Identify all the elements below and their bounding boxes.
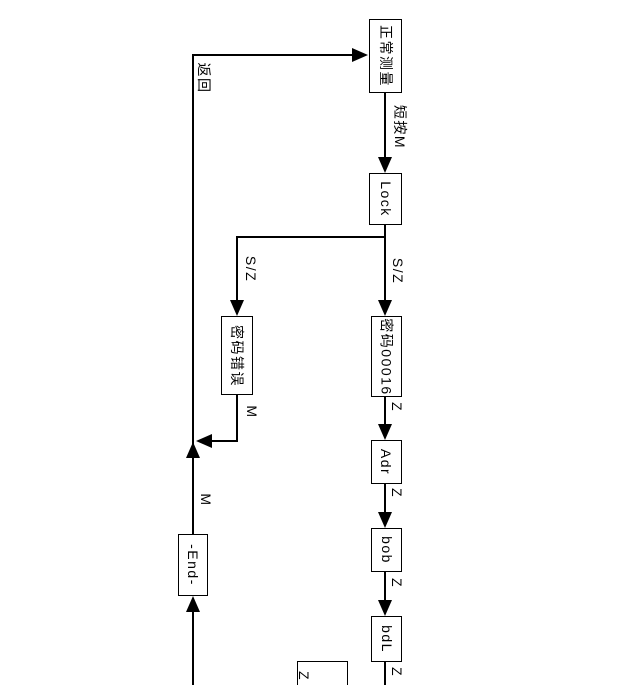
- label-sz-left: S/Z: [243, 256, 259, 282]
- arrowhead-into-bob: [378, 512, 392, 528]
- arrowhead-into-normal-measure: [352, 48, 368, 62]
- node-lock: Lock: [369, 173, 402, 225]
- label-m-after-error: M: [244, 405, 260, 418]
- node-password-error: 密码错误: [221, 316, 253, 395]
- connector-bdl-down: [384, 661, 386, 685]
- arrowhead-into-password-value: [378, 300, 392, 316]
- label-short-press-m: 短按M: [390, 105, 410, 149]
- node-normal-measure-label: 正常测量: [376, 25, 396, 87]
- node-partial-bottom-label: Z: [296, 671, 312, 681]
- connector-error-to-return: [210, 440, 238, 442]
- arrowhead-return-up: [186, 442, 200, 458]
- connector-password-to-adr: [384, 396, 386, 426]
- node-normal-measure: 正常测量: [369, 19, 402, 93]
- flowchart-canvas: 正常测量 Lock 密码错误 密码00016 Adr bob bdL -End-…: [0, 0, 640, 685]
- label-z-after-bdl: Z: [389, 667, 405, 677]
- node-bdl-label: bdL: [378, 625, 394, 653]
- label-m-to-end: M: [198, 493, 214, 506]
- node-password-value: 密码00016: [371, 316, 402, 397]
- node-bob-label: bob: [378, 536, 394, 564]
- connector-branch-to-error: [236, 237, 238, 302]
- connector-end-from-bottom: [192, 610, 194, 685]
- connector-measure-to-lock: [384, 92, 386, 159]
- arrowhead-into-adr: [378, 424, 392, 440]
- node-adr-label: Adr: [378, 449, 394, 475]
- connector-bob-to-bdl: [384, 571, 386, 602]
- arrowhead-into-password-error: [230, 300, 244, 316]
- connector-return-vertical: [192, 54, 194, 534]
- connector-error-down: [236, 394, 238, 441]
- node-bdl: bdL: [371, 616, 402, 662]
- arrowhead-into-bdl: [378, 600, 392, 616]
- connector-branch-horizontal: [236, 236, 386, 238]
- connector-adr-to-bob: [384, 483, 386, 514]
- node-password-error-label: 密码错误: [227, 325, 247, 387]
- node-adr: Adr: [371, 440, 402, 484]
- label-z-after-bob: Z: [389, 578, 405, 588]
- label-return: 返回: [194, 63, 214, 94]
- node-end-label: -End-: [185, 544, 201, 586]
- label-z-after-adr: Z: [389, 488, 405, 498]
- node-lock-label: Lock: [378, 181, 394, 217]
- node-bob: bob: [371, 528, 402, 572]
- node-end: -End-: [178, 534, 208, 596]
- connector-return-top: [192, 54, 352, 56]
- node-password-value-label: 密码00016: [377, 318, 397, 395]
- label-sz-right: S/Z: [390, 258, 406, 284]
- label-z-after-password: Z: [389, 402, 405, 412]
- arrowhead-into-lock: [378, 157, 392, 173]
- arrowhead-into-end: [186, 596, 200, 612]
